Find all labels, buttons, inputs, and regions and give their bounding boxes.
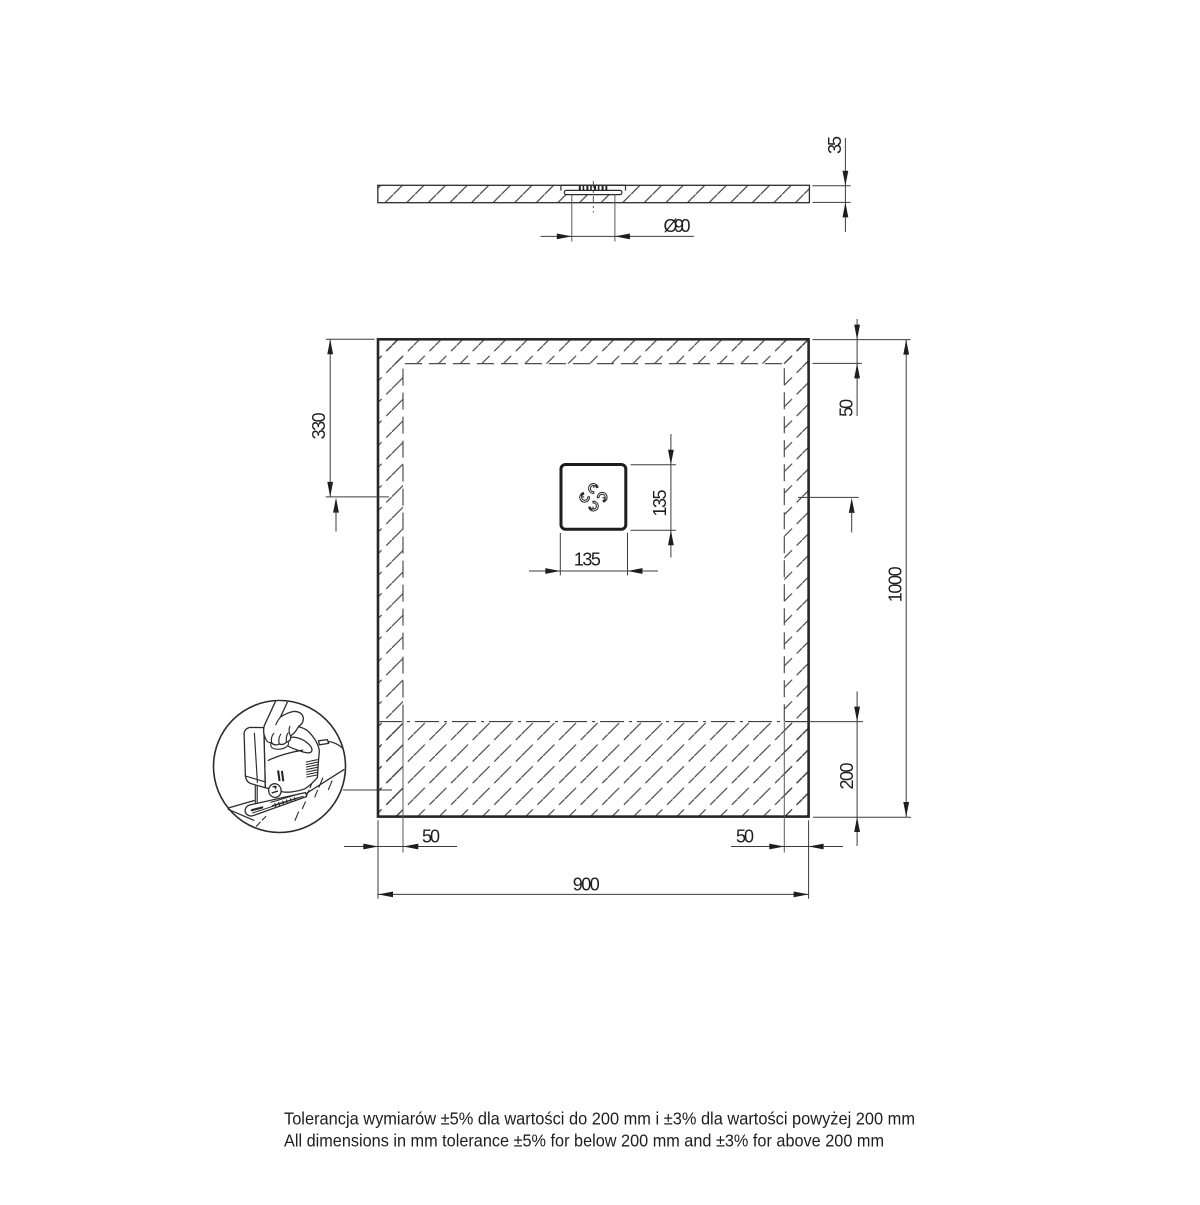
svg-text:35: 35 — [825, 136, 845, 154]
svg-text:200: 200 — [837, 763, 857, 790]
svg-text:330: 330 — [309, 412, 329, 439]
svg-text:135: 135 — [650, 490, 670, 517]
svg-text:Tolerancja wymiarów ±5% dla wa: Tolerancja wymiarów ±5% dla wartości do … — [284, 1109, 915, 1129]
svg-text:All dimensions in mm tolerance: All dimensions in mm tolerance ±5% for b… — [284, 1131, 884, 1151]
svg-text:50: 50 — [736, 826, 754, 846]
svg-text:50: 50 — [836, 399, 856, 417]
svg-text:50: 50 — [422, 826, 440, 846]
svg-text:1000: 1000 — [886, 566, 906, 602]
svg-text:900: 900 — [573, 874, 600, 894]
svg-text:135: 135 — [574, 550, 601, 570]
svg-text:Ø90: Ø90 — [664, 216, 691, 236]
